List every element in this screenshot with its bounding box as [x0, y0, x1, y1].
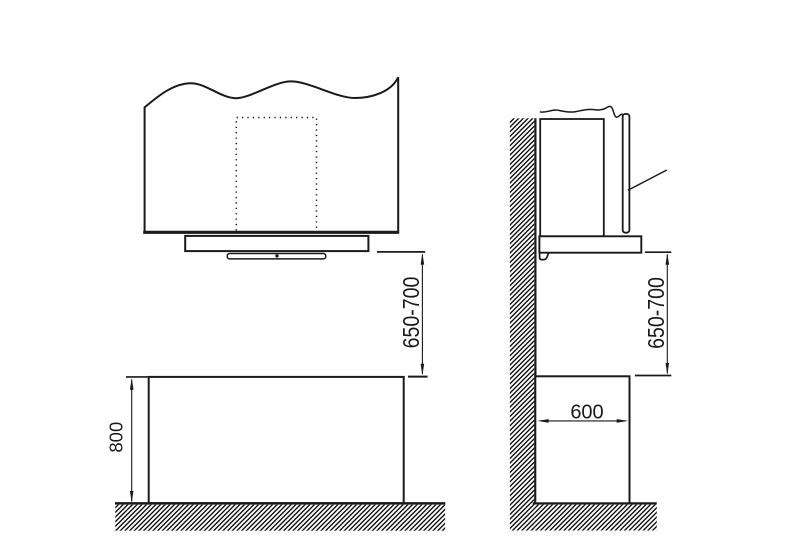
svg-text:650-700: 650-700 [399, 277, 425, 349]
svg-text:600: 600 [570, 401, 603, 423]
svg-text:800: 800 [106, 422, 127, 453]
svg-text:650-700: 650-700 [644, 277, 670, 349]
